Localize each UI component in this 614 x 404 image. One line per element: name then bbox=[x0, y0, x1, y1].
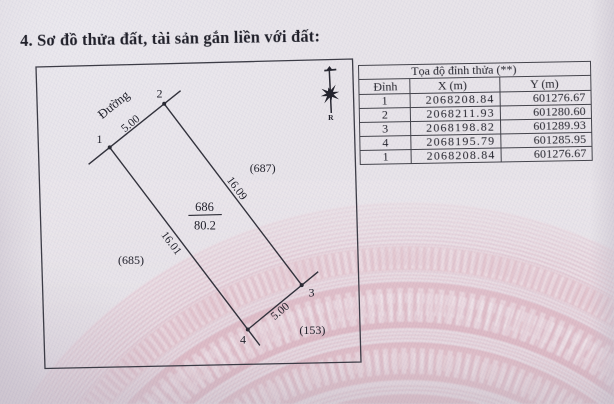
svg-text:Đường: Đường bbox=[95, 87, 133, 122]
svg-text:80.2: 80.2 bbox=[194, 219, 216, 233]
svg-text:686: 686 bbox=[195, 200, 214, 214]
svg-text:(685): (685) bbox=[118, 253, 144, 267]
svg-text:3: 3 bbox=[309, 286, 315, 300]
svg-text:5.00: 5.00 bbox=[269, 300, 292, 322]
svg-text:16.01: 16.01 bbox=[158, 229, 183, 257]
svg-text:5.00: 5.00 bbox=[119, 113, 142, 135]
svg-text:(687): (687) bbox=[250, 161, 276, 175]
svg-text:R: R bbox=[328, 113, 334, 122]
svg-text:(153): (153) bbox=[299, 323, 325, 337]
svg-text:4: 4 bbox=[240, 333, 246, 347]
svg-text:1: 1 bbox=[97, 132, 103, 146]
svg-text:2: 2 bbox=[157, 87, 163, 101]
